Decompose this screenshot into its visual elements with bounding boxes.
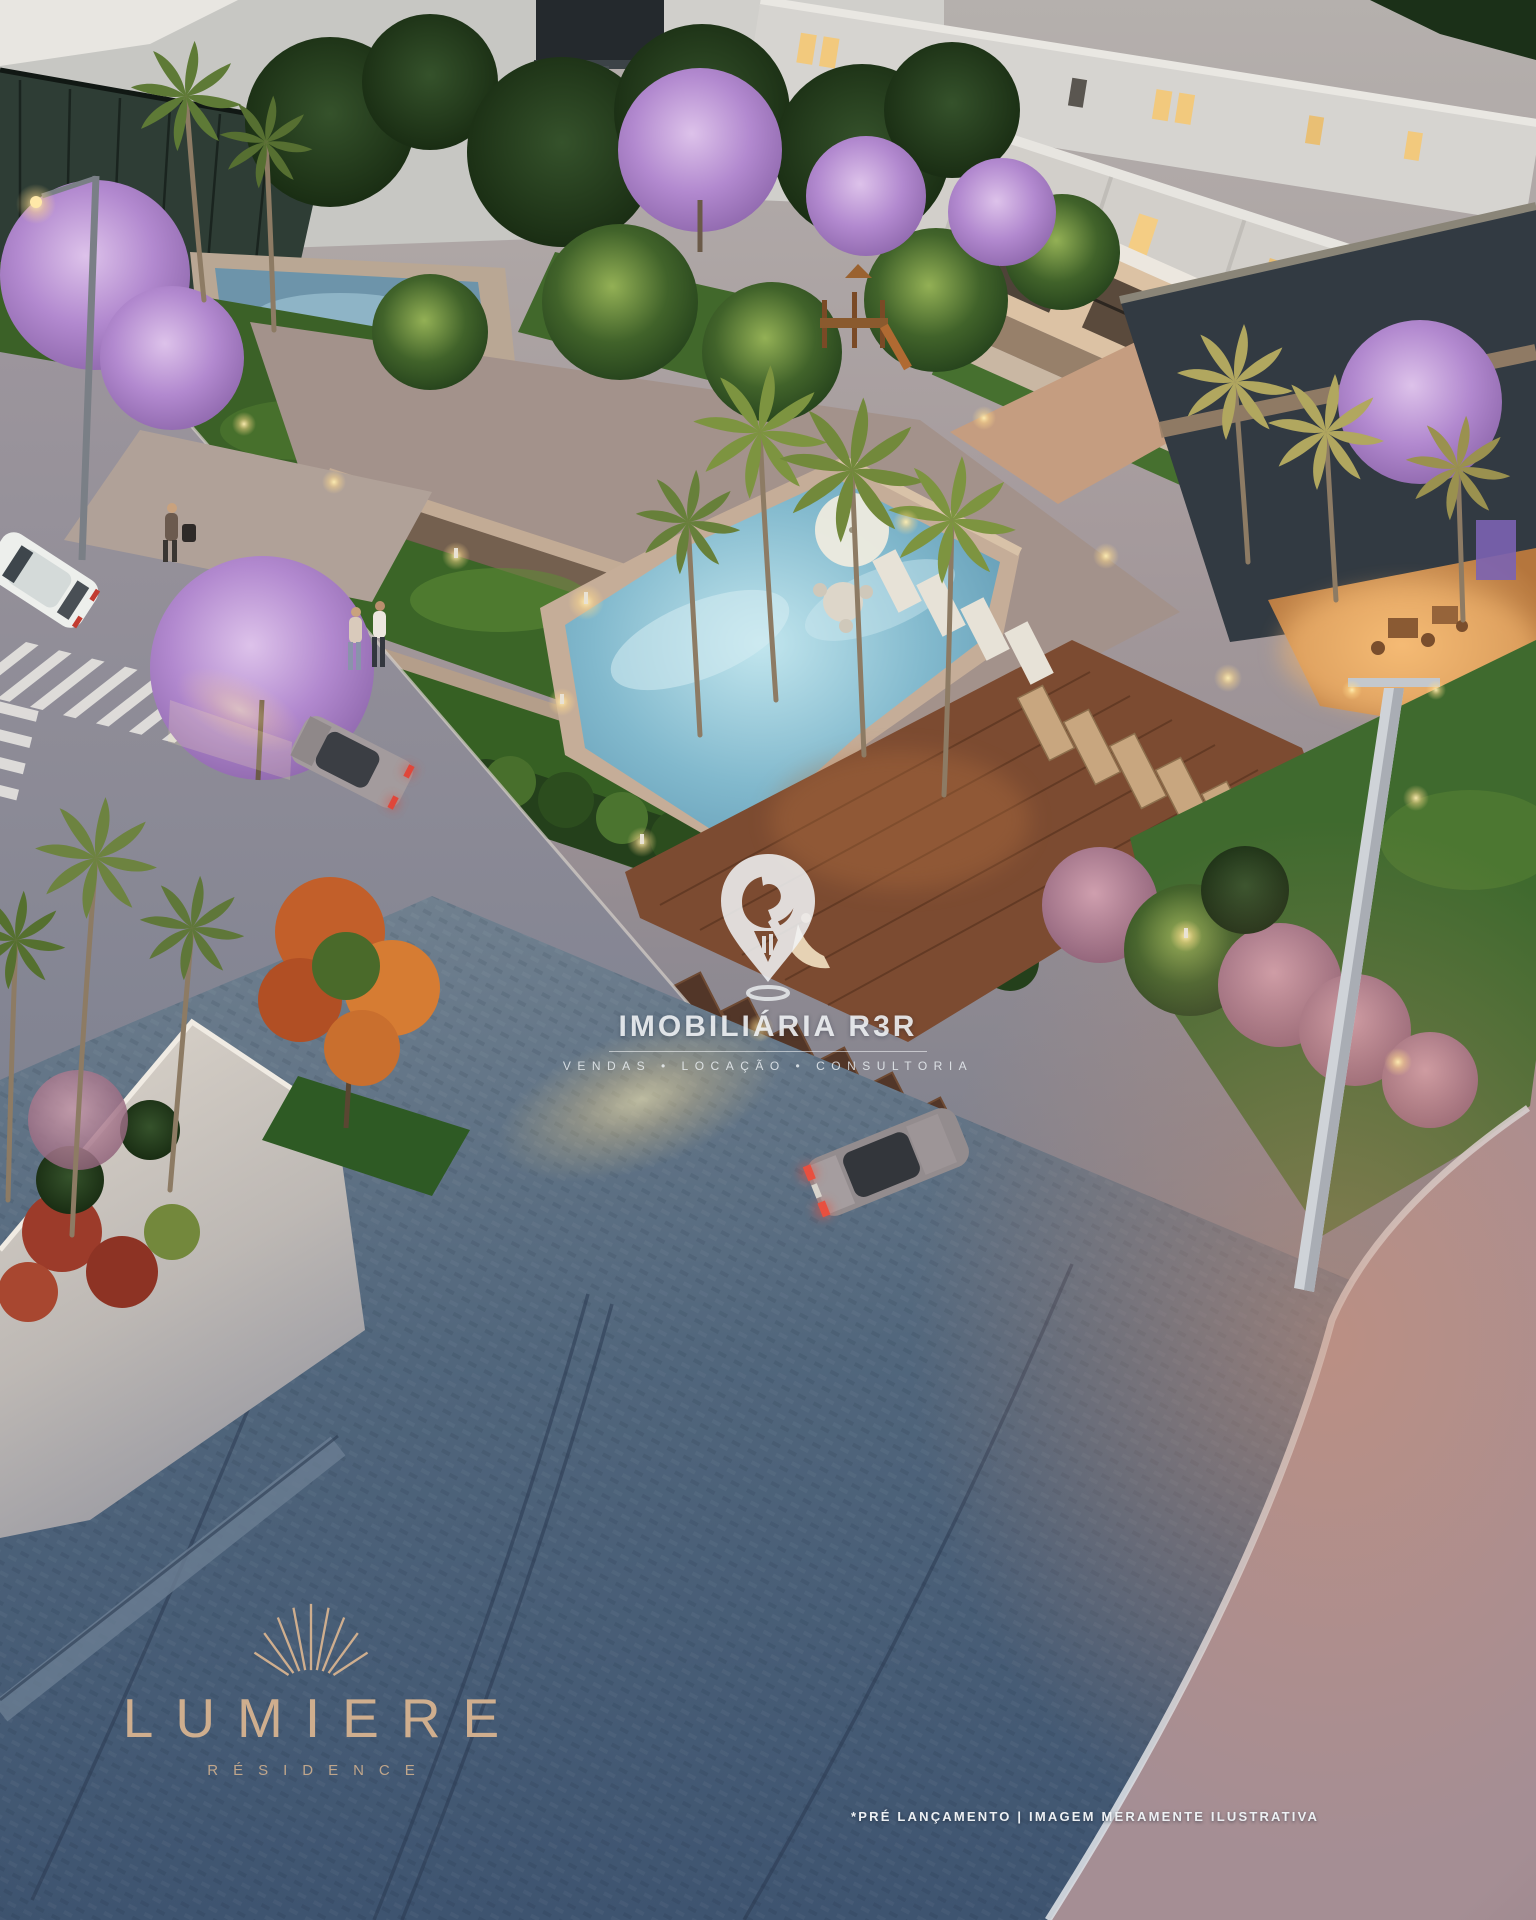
render-image: IMOBILIÁRIA R3R VENDAS • LOCAÇÃO • CONSU… [0,0,1536,1920]
scene-illustration [0,0,1536,1920]
